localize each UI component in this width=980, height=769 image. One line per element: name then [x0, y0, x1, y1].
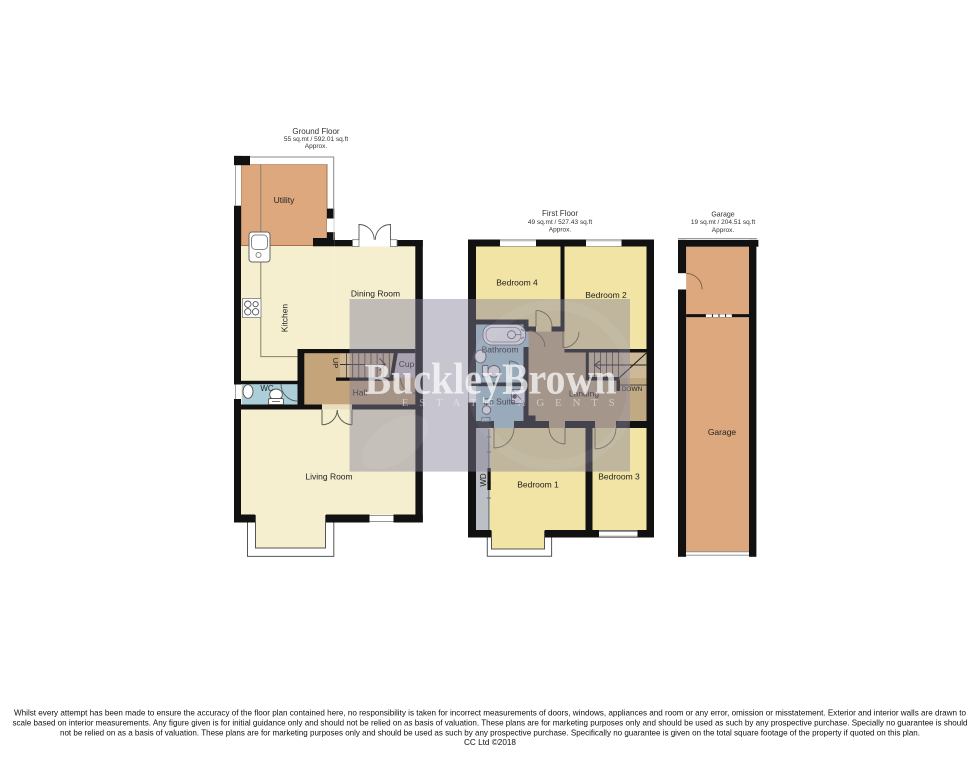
svg-text:49 sq.mt / 527.43 sq.ft: 49 sq.mt / 527.43 sq.ft — [528, 219, 593, 226]
svg-text:Bedroom 3: Bedroom 3 — [598, 472, 640, 482]
svg-text:Utility: Utility — [274, 195, 296, 205]
svg-text:Living Room: Living Room — [305, 472, 352, 482]
svg-text:UP: UP — [331, 358, 340, 368]
svg-text:Kitchen: Kitchen — [280, 304, 290, 333]
svg-text:Bedroom 2: Bedroom 2 — [585, 290, 627, 300]
svg-text:Garage: Garage — [708, 427, 737, 437]
svg-text:Bedroom 4: Bedroom 4 — [496, 278, 538, 288]
svg-text:First Floor: First Floor — [542, 209, 578, 218]
svg-text:Approx.: Approx. — [712, 227, 735, 234]
svg-text:Approx.: Approx. — [549, 226, 572, 233]
svg-text:WC: WC — [260, 384, 274, 393]
svg-text:Bedroom 1: Bedroom 1 — [517, 480, 559, 490]
svg-text:Whilst every attempt has been: Whilst every attempt has been made to en… — [14, 708, 966, 717]
svg-text:not be relied on as a basis of: not be relied on as a basis of valuation… — [60, 728, 920, 737]
svg-text:19 sq.mt / 204.51 sq.ft: 19 sq.mt / 204.51 sq.ft — [691, 219, 756, 226]
svg-text:55 sq.mt / 592.01 sq.ft: 55 sq.mt / 592.01 sq.ft — [284, 136, 349, 143]
svg-text:Garage: Garage — [711, 212, 734, 219]
svg-text:CC Ltd ©2018: CC Ltd ©2018 — [464, 738, 516, 747]
svg-text:WD: WD — [479, 473, 488, 487]
svg-text:Approx.: Approx. — [305, 143, 328, 150]
svg-text:Ground Floor: Ground Floor — [292, 127, 339, 136]
svg-text:Dining Room: Dining Room — [351, 289, 400, 299]
svg-text:scale based on interior measur: scale based on interior measurements. An… — [13, 718, 968, 727]
